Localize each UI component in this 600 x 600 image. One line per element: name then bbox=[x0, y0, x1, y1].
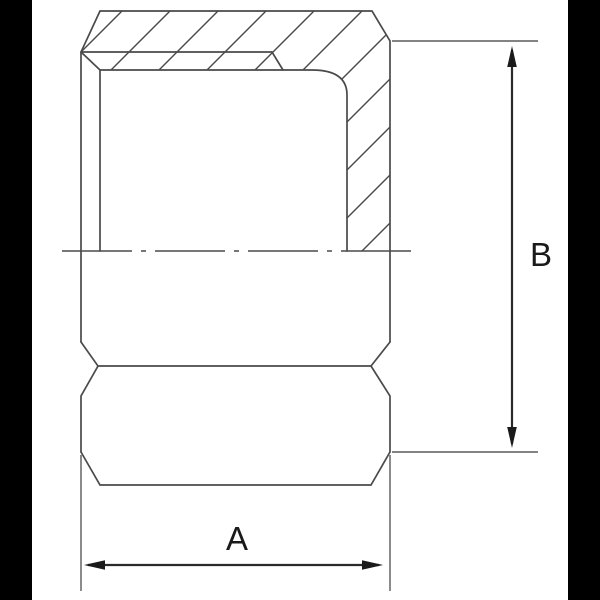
arrowhead-down-icon bbox=[507, 427, 517, 448]
bottom-profile bbox=[81, 452, 390, 485]
dimension-b: B bbox=[507, 46, 552, 448]
part-outline bbox=[81, 11, 390, 485]
arrowhead-up-icon bbox=[507, 46, 517, 67]
arrowhead-right-icon bbox=[362, 560, 383, 570]
dimension-b-label: B bbox=[530, 236, 552, 273]
drawing-canvas: A B bbox=[0, 0, 600, 600]
outer-top-profile bbox=[81, 11, 390, 342]
dimension-a-label: A bbox=[226, 520, 248, 557]
cavity-profile bbox=[81, 52, 347, 251]
section-hatching bbox=[0, 0, 600, 280]
technical-drawing: A B bbox=[0, 0, 600, 600]
arrowhead-left-icon bbox=[84, 560, 105, 570]
extension-lines bbox=[81, 41, 538, 591]
dimension-a: A bbox=[84, 520, 383, 570]
chamfer-band-edge bbox=[81, 52, 283, 70]
hex-right-notch bbox=[371, 342, 390, 452]
hex-left-notch bbox=[81, 342, 98, 452]
